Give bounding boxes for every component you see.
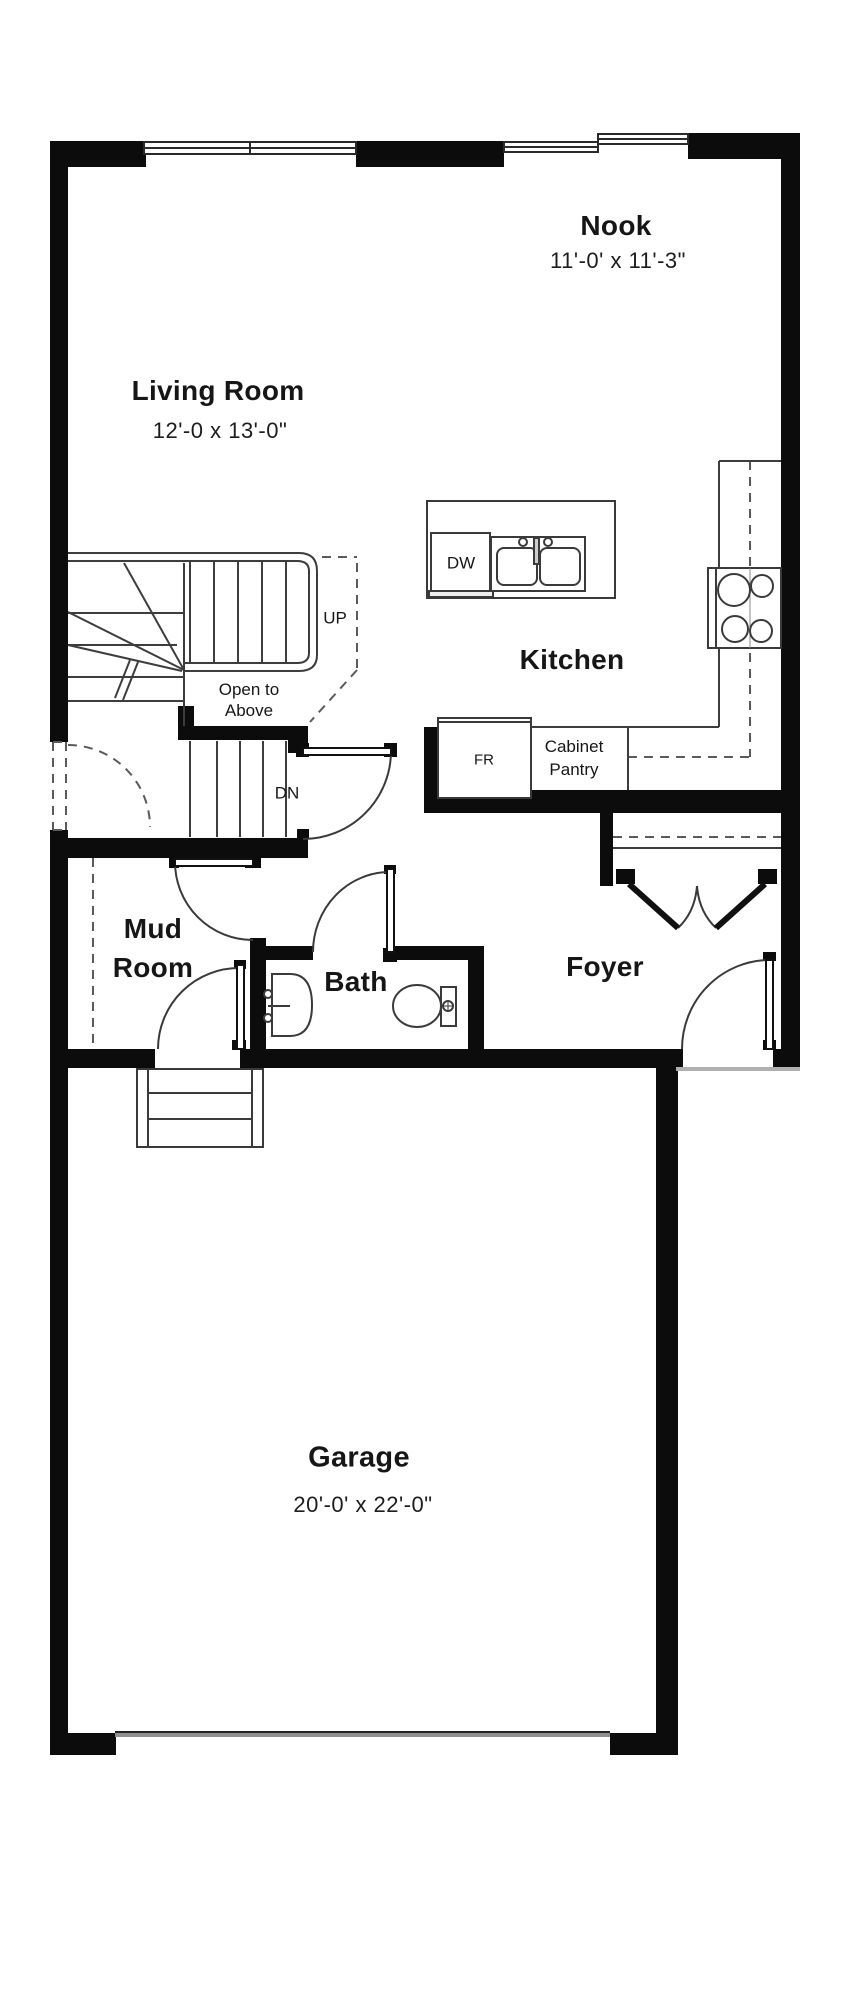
garage-right-wall [656,1068,678,1755]
faucet-spout [534,538,539,564]
front-wall-segment-1 [50,1049,155,1068]
garage-dimensions: 20'-0' x 22'-0" [293,1494,432,1516]
bath-right-wall [468,946,484,1068]
open-above-dash [310,670,357,722]
mud-bath-divider-wall [250,938,266,1068]
dishwasher-label: DW [447,555,475,572]
front-wall-segment-3 [773,1049,800,1068]
bath-top-wall-left [266,946,313,960]
toilet-icon [393,985,441,1027]
door-jamb [297,829,309,839]
sink-basin-left [497,548,537,585]
burner [750,620,772,642]
sink-handle [264,1014,272,1022]
steps-outline [137,1069,263,1147]
nook-dimensions: 11'-0' x 11'-3" [550,250,686,272]
faucet-knob [519,538,527,546]
burner [751,575,773,597]
winder-tread [68,645,182,671]
mud-room-label: Mud Room [113,909,194,987]
top-wall-segment-1 [50,141,146,167]
garage-entry-door-leaf [237,965,244,1049]
front-door-sill [676,1067,800,1071]
garage-bottom-wall-right [610,1733,678,1755]
burner [722,616,748,642]
living-room-dimensions: 12'-0 x 13'-0" [153,420,288,442]
garage-bottom-wall-left [50,1733,116,1755]
sink-basin-right [540,548,580,585]
optional-door-swing-arc [68,745,150,827]
mudroom-door-leaf [175,859,253,866]
faucet-knob [544,538,552,546]
front-door-arc [682,960,770,1049]
left-wall-lower [50,830,68,1755]
foyer-label: Foyer [566,953,644,981]
closet-door-leaf-right [716,884,765,928]
floor-plan: Nook 11'-0' x 11'-3" Living Room 12'-0 x… [0,0,850,2000]
open-to-above-label: Open to Above [219,679,280,721]
bath-label: Bath [324,968,387,996]
kitchen-label: Kitchen [520,646,625,674]
basement-door-leaf [303,748,391,755]
front-wall-segment-2 [240,1049,683,1068]
closet-door-hinge-left [616,869,635,884]
fridge-label: FR [474,753,494,768]
closet-door-swing-left [678,886,697,928]
basement-door-arc [303,751,391,839]
foyer-closet-wall [600,813,613,886]
top-wall-segment-2 [356,141,504,167]
kitchen-island [427,501,615,598]
floor-plan-drawing [0,0,850,2000]
burner [718,574,750,606]
closet-door-swing-right [697,886,716,928]
sink-handle [264,990,272,998]
living-room-label: Living Room [132,377,305,405]
thresholds [115,1067,800,1737]
front-door-leaf [766,960,773,1049]
stairs-up-label: UP [323,610,347,627]
bath-door-leaf [387,869,394,952]
bath-door-arc [313,872,390,952]
stair-break-mark [115,660,130,698]
hall-mudroom-wall [50,838,308,858]
nook-label: Nook [580,212,651,240]
garage-label: Garage [308,1444,410,1473]
cabinet-pantry-label: Cabinet Pantry [545,735,604,781]
closet-door-hinge-right [758,869,777,884]
stairs-down-label: DN [275,785,300,802]
closet-door-leaf-left [629,884,678,928]
dishwasher-front [429,591,493,597]
garage-steps [137,1069,263,1147]
right-wall [781,133,800,1068]
stair-wall-bar [178,726,308,740]
stair-break-mark [123,662,138,700]
left-wall-upper [50,141,68,742]
stove-icon [708,568,781,648]
